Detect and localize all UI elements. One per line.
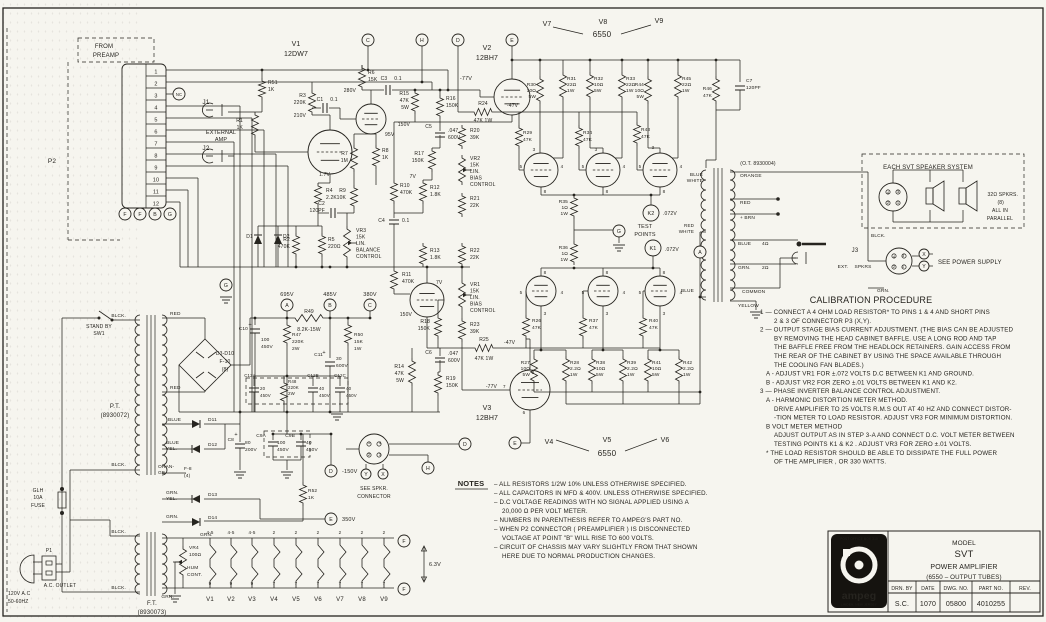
- schematic-label: 1W: [682, 88, 690, 94]
- calibration-line: A - HARMONIC DISTORTION METER METHOD.: [766, 397, 908, 404]
- schematic-label: YEL.: [166, 446, 177, 452]
- terminal-letter: NC: [176, 92, 182, 97]
- schematic-label: 47K: [641, 134, 651, 140]
- schematic-label: 7V: [410, 174, 417, 180]
- terminal-letter: X: [381, 472, 385, 478]
- schematic-label: LIN.: [470, 295, 480, 301]
- schematic-label: 4: [623, 290, 626, 295]
- schematic-label: BLUE: [166, 440, 179, 446]
- calibration-line: 2 & 3 OF CONNECTOR P3 (X,Y).: [774, 318, 871, 325]
- terminal-letter: Y: [364, 472, 368, 478]
- junction-dot: [369, 317, 372, 320]
- schematic-label: ORAN-: [158, 464, 174, 470]
- schematic-label: 470K: [278, 244, 291, 250]
- schematic-label: 2: [361, 530, 364, 535]
- schematic-label: 1K: [268, 87, 275, 93]
- schematic-label: EACH SVT SPEAKER SYSTEM: [883, 165, 973, 171]
- octal-connector-symbol: [886, 248, 912, 274]
- diode-symbol: [192, 420, 200, 428]
- calibration-line: A - ADJUST VR1 FOR ±.072 VOLTS D.C BETWE…: [766, 371, 974, 378]
- diode-symbol: [192, 518, 200, 526]
- schematic-label: C12B: [307, 373, 319, 378]
- schematic-label: 200V: [245, 447, 257, 453]
- transformer-coil: [730, 170, 735, 300]
- schematic-label: 5W: [594, 88, 602, 94]
- schematic-label: 2.2Ω: [683, 366, 694, 372]
- resistor-symbol: [676, 356, 683, 384]
- calibration-line: -TION METER TO LOAD RESISTOR. ADJUST VR3…: [774, 415, 1012, 422]
- schematic-label: 485V: [323, 292, 337, 298]
- schematic-label: R26: [532, 318, 541, 324]
- schematic-label: A.C. OUTLET: [44, 583, 77, 589]
- connector-pin-number: 11: [153, 190, 159, 196]
- schematic-label: .072V: [663, 211, 677, 217]
- title-block: POST OFFICE BOX 310ampegLINDEN, NEW JERS…: [828, 531, 1040, 612]
- diode-symbol: [254, 235, 262, 244]
- schematic-label: R41: [652, 360, 661, 366]
- schematic-label: V1: [206, 597, 214, 603]
- resistor-symbol: [391, 268, 398, 292]
- junction-dot: [254, 317, 257, 320]
- schematic-label: 6550: [598, 449, 617, 458]
- schematic-label: 47K: [400, 98, 410, 104]
- schematic-label: 2: [295, 530, 298, 535]
- schematic-label: 8: [532, 370, 535, 375]
- schematic-canvas: NCFFBGCHDEGABCGK2K1ADEDEHYXFFXY FROMPREA…: [0, 0, 1046, 622]
- schematic-label: FROM: [95, 44, 113, 50]
- schematic-label: WHITE: [687, 178, 703, 184]
- schematic-label: R44: [635, 82, 644, 88]
- schematic-label: GRN.: [877, 288, 890, 294]
- schematic-label: R19: [446, 376, 456, 382]
- vacuum-tube-symbol: [510, 370, 550, 410]
- schematic-label: R40: [649, 318, 658, 324]
- junction-dot: [60, 511, 64, 515]
- schematic-label: 10Ω: [596, 366, 606, 372]
- schematic-label: 47K: [649, 325, 659, 331]
- schematic-label: 4: [680, 164, 683, 169]
- ampeg-logo-dot: [855, 561, 864, 570]
- schematic-label: 100: [261, 337, 270, 343]
- schematic-label: .047: [448, 128, 458, 134]
- resistor-symbol: [713, 76, 720, 104]
- schematic-label: 695V: [280, 292, 294, 298]
- connector-pin-number: 10: [153, 178, 159, 184]
- schematic-label: + BRN: [740, 215, 755, 221]
- junction-dot: [98, 317, 101, 320]
- resistor-symbol: [345, 322, 352, 346]
- schematic-label: 1W: [626, 88, 634, 94]
- junction-dot: [286, 375, 289, 378]
- junction-dot: [699, 296, 702, 299]
- schematic-label: GLH: [33, 488, 44, 494]
- schematic-label: 4-5: [207, 530, 214, 535]
- schematic-label: RED: [740, 200, 751, 206]
- schematic-label: R31: [567, 76, 576, 82]
- table-header: DATE: [921, 586, 935, 592]
- calibration-line: 2 — OUTPUT STAGE BIAS CURRENT ADJUSTMENT…: [760, 327, 1013, 334]
- product-subtitle: (6550 – OUTPUT TUBES): [926, 574, 1001, 581]
- calibration-title: CALIBRATION PROCEDURE: [810, 295, 933, 305]
- schematic-label: 600V: [336, 363, 348, 369]
- dashed-lines: [7, 28, 1024, 612]
- schematic-label: 450V: [319, 393, 330, 398]
- schematic-label: PREAMP: [93, 53, 119, 59]
- junction-dot: [346, 266, 349, 269]
- schematic-label: 470K: [400, 190, 413, 196]
- schematic-label: R14: [394, 364, 404, 370]
- schematic-label: 10Ω: [652, 366, 662, 372]
- schematic-label: 1W: [354, 346, 362, 352]
- schematic-label: 600V: [448, 358, 461, 364]
- calibration-line: BY REMOVING THE HEAD CABINET BAFFLE. USE…: [774, 335, 996, 342]
- schematic-label: 5W: [596, 372, 604, 378]
- schematic-label: R29: [523, 130, 532, 136]
- terminal-letter: F: [138, 212, 141, 218]
- schematic-label: C5: [425, 124, 432, 130]
- schematic-label: 120PF: [310, 208, 325, 214]
- resistor-symbol: [435, 372, 442, 396]
- resistor-symbol: [589, 356, 596, 384]
- schematic-label: R45: [682, 76, 691, 82]
- junction-dot: [414, 89, 417, 92]
- junction-dot: [715, 59, 718, 62]
- junction-dot: [461, 266, 464, 269]
- schematic-label: BIAS: [470, 302, 483, 308]
- schematic-label: BLCK.: [111, 313, 126, 319]
- schematic-label: V4: [545, 439, 554, 446]
- schematic-label: EXTERNAL: [206, 130, 236, 136]
- schematic-label: TEST: [638, 224, 653, 230]
- junction-dot: [659, 349, 662, 352]
- schematic-label: YELLOW: [738, 303, 759, 309]
- notes-line: – ALL RESISTORS 1/2W 10% UNLESS OTHERWIS…: [494, 481, 687, 488]
- terminal-letter: C: [366, 38, 370, 44]
- schematic-label: 10Ω: [635, 88, 645, 94]
- junction-dot: [347, 317, 350, 320]
- schematic-label: GRN.: [166, 514, 179, 520]
- resistor-symbol: [472, 345, 496, 352]
- schematic-label: P2: [48, 158, 56, 165]
- connector-pin-number: 1: [154, 70, 157, 76]
- schematic-label: 47K 1W: [475, 356, 494, 362]
- resistor-symbol: [619, 72, 626, 100]
- resistor-symbol: [412, 90, 419, 114]
- schematic-label: CONTROL: [470, 308, 496, 314]
- schematic-label: 8: [544, 270, 547, 275]
- outlet-slot: [46, 571, 52, 575]
- schematic-label: BLCK.: [871, 233, 886, 239]
- schematic-label: 1.7V: [319, 172, 330, 178]
- schematic-label: 10A: [33, 495, 43, 501]
- schematic-label: R48: [288, 379, 297, 384]
- junction-dot: [776, 212, 780, 216]
- table-value: S.C.: [895, 601, 909, 608]
- diode-symbol: [192, 495, 200, 503]
- schematic-label: 380V: [363, 292, 377, 298]
- schematic-label: SEE POWER SUPPLY: [938, 260, 1002, 266]
- schematic-label: V8: [358, 597, 366, 603]
- table-value: 4010255: [977, 601, 1005, 608]
- schematic-label: C7: [746, 78, 753, 84]
- schematic-label: R13: [430, 248, 440, 254]
- outlet-slot: [46, 561, 52, 565]
- junction-dot: [261, 69, 264, 72]
- schematic-label: EXT.: [838, 264, 849, 270]
- logo-address: POST OFFICE BOX 310: [840, 537, 878, 541]
- schematic-label: 5W: [652, 372, 660, 378]
- schematic-label: F-8: [184, 466, 192, 472]
- connector-pin-number: 8: [154, 154, 157, 160]
- schematic-label: 1W: [567, 88, 575, 94]
- schematic-label: 8: [606, 189, 609, 194]
- schematic-label: 47K: [589, 325, 599, 331]
- symbol-glyph: [179, 339, 231, 391]
- junction-dot: [286, 411, 289, 414]
- schematic-label: 220K: [288, 385, 299, 390]
- schematic-label: 5W: [523, 372, 531, 378]
- schematic-label: 5: [582, 290, 585, 295]
- resistor-symbol: [292, 315, 326, 322]
- resistor-symbol: [420, 180, 427, 204]
- schematic-label: 150K: [446, 103, 459, 109]
- schematic-label: 150K: [412, 158, 425, 164]
- schematic-label: BLUE: [681, 288, 694, 294]
- schematic-label: ORANGE: [740, 173, 762, 179]
- schematic-label: R34: [583, 130, 592, 136]
- schematic-label: BLCK.: [111, 462, 126, 468]
- schematic-label: R10: [400, 183, 410, 189]
- schematic-label: 1.8K: [430, 255, 441, 261]
- diode-symbol: [274, 235, 282, 244]
- schematic-label: 470K: [402, 279, 415, 285]
- junction-dot: [540, 349, 543, 352]
- resistor-symbol: [523, 315, 530, 339]
- schematic-label: V5: [292, 597, 300, 603]
- calibration-line: OF THE AMPLIFIER , OR 330 WATTS.: [774, 459, 886, 466]
- table-header: DWG. NO.: [943, 586, 968, 592]
- schematic-label: 7: [383, 581, 386, 586]
- schematic-label: 220Ω: [328, 244, 341, 250]
- schematic-label: CONTROL: [356, 254, 382, 260]
- schematic-label: V7: [336, 597, 344, 603]
- schematic-label: R30: [527, 82, 536, 88]
- schematic-label: PARALLEL: [987, 216, 1013, 222]
- resistor-symbol: [459, 318, 466, 342]
- schematic-label: C3: [381, 76, 388, 82]
- notes-line: HERE DUE TO NORMAL PRODUCTION CHANGES.: [502, 553, 655, 560]
- schematic-label: R36: [559, 245, 568, 251]
- schematic-label: V5: [603, 437, 612, 444]
- resistor-symbol: [645, 356, 652, 384]
- schematic-label: R50: [354, 332, 363, 338]
- schematic-label: 4: [561, 164, 564, 169]
- junction-dot: [321, 266, 324, 269]
- schematic-label: (8930073): [138, 610, 167, 616]
- schematic-label: 5: [520, 164, 523, 169]
- schematic-label: GRN.: [166, 490, 179, 496]
- schematic-label: R22: [470, 248, 480, 254]
- schematic-label: R25: [479, 337, 489, 343]
- schematic-label: BIAS: [470, 176, 483, 182]
- notes-line: – NUMBERS IN PARENTHESIS REFER TO AMPEG'…: [494, 517, 683, 524]
- schematic-label: VR1: [470, 282, 480, 288]
- schematic-label: R28: [570, 360, 579, 366]
- schematic-label: 150V: [398, 122, 411, 128]
- terminal-letter: B: [328, 303, 332, 309]
- product-name: POWER AMPLIFIER: [930, 564, 997, 571]
- junction-dot: [239, 411, 242, 414]
- resistor-symbol: [459, 193, 466, 217]
- schematic-label: 6.3V: [429, 562, 441, 568]
- schematic-label: 450V: [306, 447, 318, 453]
- schematic-label: V2: [483, 45, 492, 52]
- schematic-label: 5W: [401, 105, 409, 111]
- ampeg-wordmark: ampeg: [842, 590, 877, 602]
- schematic-label: R16: [446, 96, 456, 102]
- schematic-label: 40: [306, 440, 312, 446]
- schematic-label: R35: [559, 199, 568, 205]
- schematic-label: 1.8K: [430, 192, 441, 198]
- schematic-label: V8: [599, 19, 608, 26]
- symbol-glyph: [196, 352, 216, 378]
- resistor-symbol: [563, 356, 570, 384]
- schematic-label: C9B: [285, 433, 295, 439]
- schematic-label: +: [248, 322, 251, 328]
- resistor-symbol: [580, 315, 587, 339]
- schematic-label: 32Ω SPKRS.: [987, 192, 1018, 198]
- connector-pin-number: 4: [154, 106, 157, 112]
- calibration-procedure: CALIBRATION PROCEDURE1 — CONNECT A 4 OHM…: [760, 295, 1015, 466]
- schematic-label: +: [234, 432, 237, 438]
- schematic-label: -47V: [504, 340, 516, 346]
- schematic-label: STAND BY: [86, 324, 112, 330]
- schematic-label: 10Ω: [594, 82, 604, 88]
- diode-symbol: [192, 445, 200, 453]
- schematic-label: 6550: [593, 30, 612, 39]
- schematic-label: 2W: [288, 391, 296, 396]
- schematic-label: AMP: [215, 137, 228, 143]
- junction-dot: [329, 266, 332, 269]
- schematic-label: POINTS: [634, 232, 656, 238]
- schematic-label: 15K: [356, 235, 366, 241]
- schematic-label: (O.T. 8930004): [740, 161, 776, 167]
- junction-dot: [776, 197, 780, 201]
- schematic-label: R46: [703, 86, 712, 92]
- symbol-glyph: [20, 555, 34, 583]
- schematic-label: V2: [227, 597, 235, 603]
- schematic-label: 4Ω: [762, 241, 769, 247]
- schematic-label: C2: [318, 201, 325, 207]
- schematic-label: V3: [483, 405, 492, 412]
- wire: [553, 27, 583, 34]
- schematic-label: R24: [478, 101, 488, 107]
- schematic-label: 2.2K: [326, 195, 337, 201]
- schematic-label: C6: [425, 350, 432, 356]
- resistor-symbol: [620, 356, 627, 384]
- resistor-symbol: [675, 72, 682, 100]
- schematic-label: R8: [382, 148, 389, 154]
- schematic-label: CONTROL: [470, 182, 496, 188]
- schematic-label: R12: [430, 185, 440, 191]
- table-header: PART NO.: [979, 586, 1003, 592]
- schematic-label: 210V: [294, 113, 307, 119]
- dashed-line: [246, 378, 348, 404]
- schematic-label: R49: [304, 309, 314, 315]
- schematic-label: 95V: [385, 132, 395, 138]
- terminal-letter: H: [426, 466, 430, 472]
- resistor-symbol: [373, 145, 380, 169]
- schematic-label: VR2: [470, 156, 480, 162]
- schematic-label: 80: [245, 440, 251, 446]
- junction-dot: [797, 242, 802, 247]
- schematic-label: 450V: [260, 393, 271, 398]
- schematic-label: 3: [606, 311, 609, 316]
- junction-dot: [439, 89, 442, 92]
- schematic-label: GRN.: [161, 594, 174, 600]
- symbol-glyph: [99, 311, 112, 320]
- schematic-label: -47V: [507, 103, 519, 109]
- junction-dot: [621, 59, 624, 62]
- schematic-label: 7: [361, 581, 364, 586]
- preamp-connector: 123456789101112: [122, 64, 166, 208]
- schematic-label: 47K: [395, 371, 405, 377]
- resistor-symbol: [259, 78, 266, 100]
- schematic-label: 1K: [308, 495, 315, 501]
- schematic-label: GE: [158, 470, 165, 476]
- schematic-label: R21: [470, 196, 480, 202]
- schematic-label: 100Ω: [189, 552, 201, 558]
- terminal-letter: K2: [647, 211, 654, 217]
- schematic-label: 2: [339, 530, 342, 535]
- schematic-label: 220K: [294, 100, 307, 106]
- schematic-label: C9A: [256, 433, 266, 439]
- schematic-label: C12A: [244, 373, 256, 378]
- schematic-label: D3-D10: [216, 351, 234, 357]
- terminal-letter: X: [922, 252, 926, 258]
- schematic-label: V4: [270, 597, 278, 603]
- schematic-label: 280V: [344, 88, 357, 94]
- schematic-label: 2: [383, 530, 386, 535]
- terminal-letter: K1: [649, 246, 656, 252]
- schematic-label: 2.2Ω: [627, 366, 638, 372]
- schematic-label: R9: [339, 188, 346, 194]
- wire: [621, 25, 651, 34]
- junction-dot: [699, 391, 702, 394]
- resistor-symbol: [459, 243, 466, 267]
- schematic-label: 4-5: [228, 530, 235, 535]
- terminal-letter: G: [224, 283, 228, 289]
- schematic-label: SEE SPKR.: [360, 486, 388, 492]
- notes-line: – CIRCUIT OF CHASSIS MAY VARY SLIGHTLY F…: [494, 544, 698, 551]
- schematic-label: R33: [626, 76, 635, 82]
- calibration-line: TESTING POINTS K1 & K2 . ADJUST VR3 FOR …: [774, 441, 972, 448]
- schematic-label: HUM: [187, 565, 198, 571]
- schematic-label: 10Ω: [527, 88, 537, 94]
- terminal-letter: A: [285, 303, 289, 309]
- schematic-label: R39: [627, 360, 636, 366]
- schematic-label: 150K: [446, 383, 459, 389]
- terminal-letter: D: [329, 469, 333, 475]
- schematic-label: 1Ω: [561, 251, 568, 257]
- schematic-label: D11: [208, 417, 217, 423]
- connector-pin-number: 12: [153, 202, 159, 208]
- resistor-symbol: [409, 358, 416, 386]
- schematic-label: -77V: [486, 384, 498, 390]
- resistor-symbol: [571, 241, 578, 265]
- schematic-label: 150K: [418, 326, 431, 332]
- schematic-label: CONNECTOR: [357, 494, 391, 500]
